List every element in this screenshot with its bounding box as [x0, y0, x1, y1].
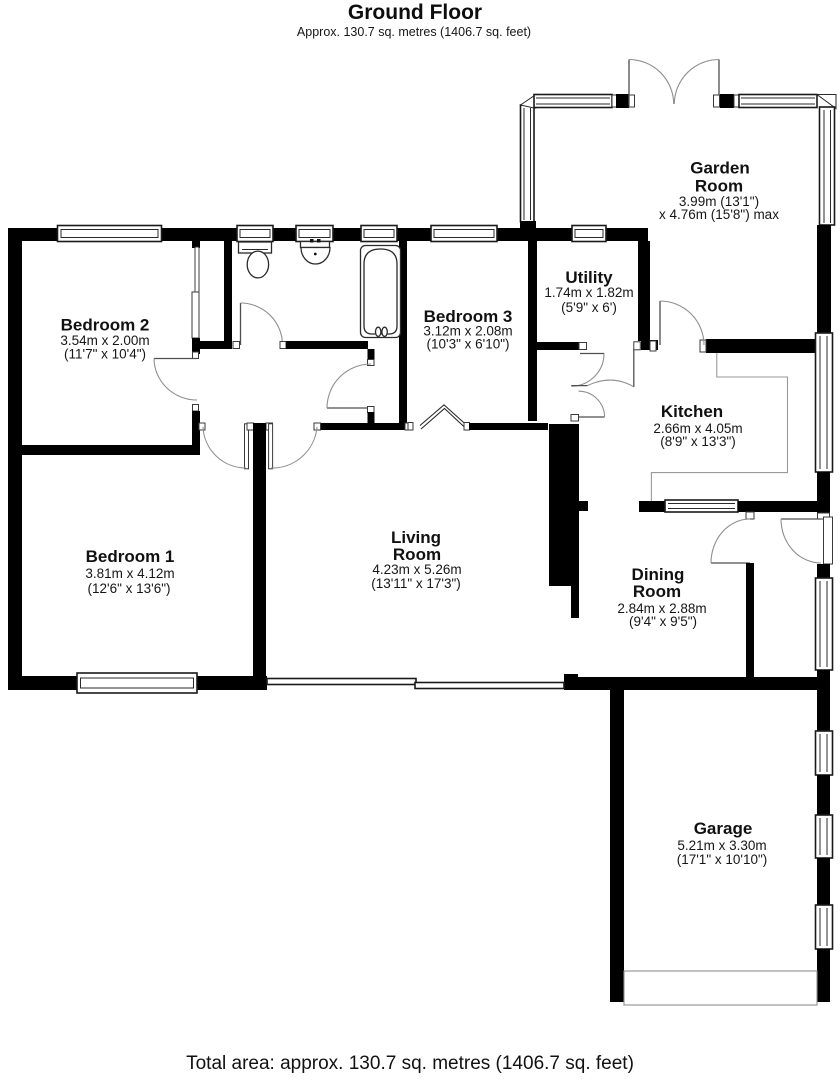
svg-text:Approx. 130.7 sq. metres (1406: Approx. 130.7 sq. metres (1406.7 sq. fee… — [297, 25, 531, 39]
svg-text:Bedroom 2: Bedroom 2 — [61, 316, 150, 335]
svg-text:1.74m x 1.82m: 1.74m x 1.82m — [544, 285, 633, 300]
svg-text:(17'1" x 10'10"): (17'1" x 10'10") — [677, 852, 768, 867]
svg-text:4.23m x 5.26m: 4.23m x 5.26m — [372, 562, 461, 577]
svg-text:Room: Room — [633, 582, 681, 601]
svg-text:(12'6" x 13'6"): (12'6" x 13'6") — [87, 581, 170, 596]
svg-text:Garage: Garage — [694, 819, 753, 838]
svg-text:Kitchen: Kitchen — [661, 402, 723, 421]
svg-text:Bedroom 1: Bedroom 1 — [86, 547, 175, 566]
svg-text:(9'4" x 9'5"): (9'4" x 9'5") — [629, 614, 697, 629]
svg-text:Room: Room — [695, 177, 743, 196]
svg-text:3.81m x 4.12m: 3.81m x 4.12m — [85, 566, 174, 581]
svg-text:(11'7" x 10'4"): (11'7" x 10'4") — [64, 347, 146, 362]
svg-text:(13'11" x 17'3"): (13'11" x 17'3") — [371, 576, 461, 591]
svg-text:(10'3" x 6'10"): (10'3" x 6'10") — [426, 337, 509, 352]
svg-text:Total area: approx. 130.7 sq.: Total area: approx. 130.7 sq. metres (14… — [186, 1053, 634, 1074]
svg-text:(5'9" x 6'): (5'9" x 6') — [561, 300, 617, 315]
svg-text:(8'9" x 13'3"): (8'9" x 13'3") — [660, 434, 736, 449]
svg-text:x 4.76m (15'8") max: x 4.76m (15'8") max — [659, 207, 779, 222]
svg-text:5.21m x 3.30m: 5.21m x 3.30m — [677, 838, 766, 853]
svg-text:Ground Floor: Ground Floor — [348, 1, 482, 24]
svg-text:Garden: Garden — [690, 159, 750, 178]
